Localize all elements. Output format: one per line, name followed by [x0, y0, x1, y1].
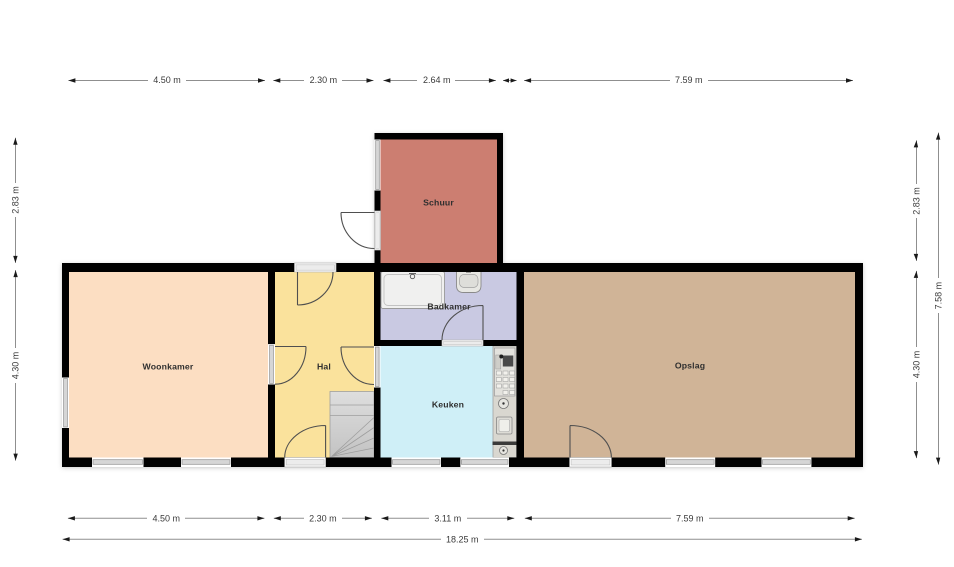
svg-text:18.25 m: 18.25 m — [446, 535, 479, 545]
svg-text:4.50 m: 4.50 m — [152, 514, 180, 524]
svg-text:3.11 m: 3.11 m — [434, 514, 461, 524]
svg-text:Woonkamer: Woonkamer — [143, 361, 194, 371]
svg-text:7.59 m: 7.59 m — [675, 75, 703, 85]
svg-text:2.83 m: 2.83 m — [11, 186, 21, 214]
svg-text:4.50 m: 4.50 m — [153, 75, 181, 85]
svg-text:Hal: Hal — [317, 361, 331, 371]
svg-text:Opslag: Opslag — [675, 360, 705, 370]
svg-text:7.58 m: 7.58 m — [934, 282, 944, 310]
svg-text:4.30 m: 4.30 m — [912, 351, 922, 379]
svg-text:2.30 m: 2.30 m — [310, 75, 338, 85]
svg-text:Badkamer: Badkamer — [427, 301, 471, 311]
svg-text:2.64 m: 2.64 m — [423, 75, 451, 85]
svg-text:2.30 m: 2.30 m — [309, 514, 337, 524]
svg-text:4.30 m: 4.30 m — [11, 352, 21, 380]
svg-text:2.83 m: 2.83 m — [912, 187, 922, 215]
svg-text:7.59 m: 7.59 m — [676, 514, 704, 524]
svg-text:Keuken: Keuken — [432, 399, 464, 409]
svg-text:Schuur: Schuur — [423, 197, 454, 207]
